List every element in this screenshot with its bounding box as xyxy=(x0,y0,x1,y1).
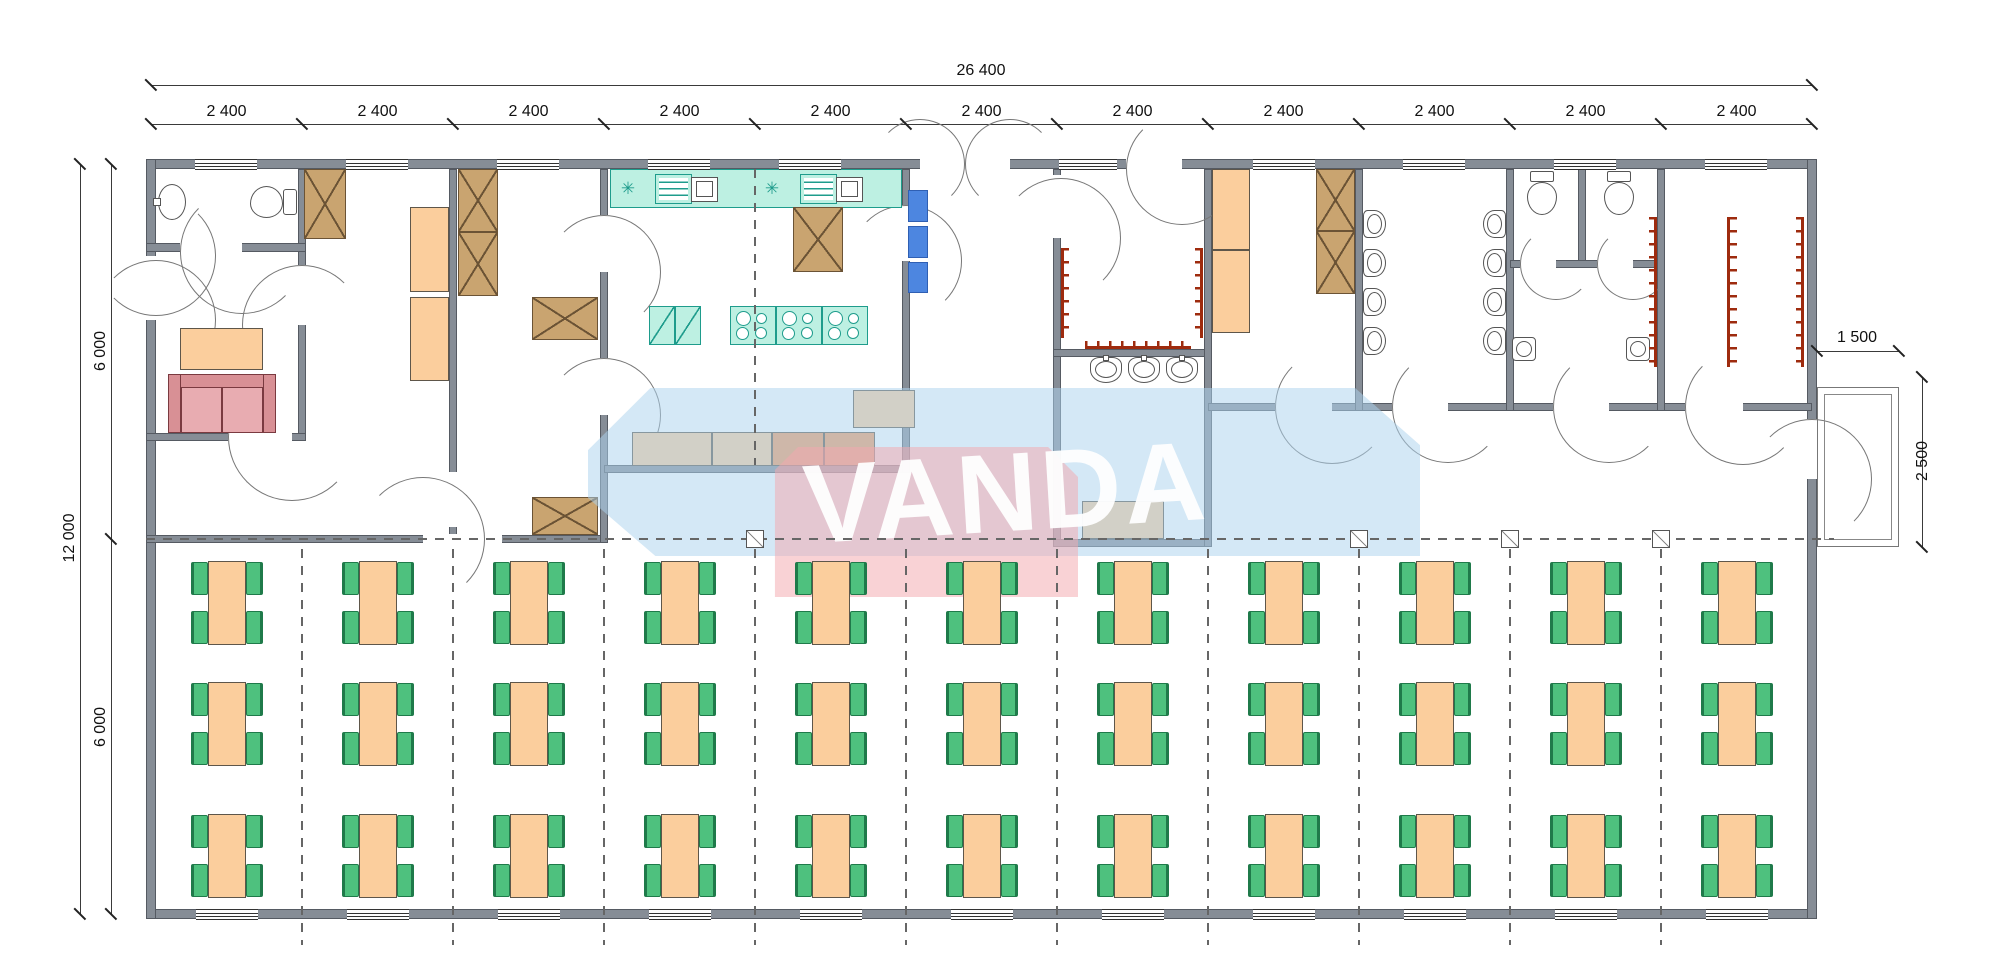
axis-line-horizontal xyxy=(146,538,1834,539)
dining-table xyxy=(359,814,397,898)
chair xyxy=(1550,562,1567,595)
chair xyxy=(1605,732,1622,765)
refrigerator xyxy=(649,306,675,345)
toilet-tank xyxy=(1530,171,1554,182)
wash-basin-bowl xyxy=(1487,214,1502,234)
chair xyxy=(1550,683,1567,716)
window xyxy=(779,159,841,170)
chair xyxy=(850,562,867,595)
coat-rack-freestanding xyxy=(1727,217,1737,367)
chair xyxy=(1454,611,1471,644)
chair xyxy=(493,562,510,595)
chair xyxy=(850,611,867,644)
chair xyxy=(795,562,812,595)
chair xyxy=(1152,683,1169,716)
wardrobe xyxy=(304,169,346,239)
chair xyxy=(397,815,414,848)
chair xyxy=(1399,864,1416,897)
chair xyxy=(1152,562,1169,595)
chair xyxy=(1756,732,1773,765)
chair xyxy=(1152,732,1169,765)
height-segment-dimension-bottom: 6 000 xyxy=(92,677,110,777)
chair xyxy=(1605,562,1622,595)
chair xyxy=(1001,732,1018,765)
chair xyxy=(795,864,812,897)
chair xyxy=(1303,864,1320,897)
cabinet xyxy=(532,497,598,535)
axis-marker xyxy=(746,530,764,548)
dining-table xyxy=(1567,814,1605,898)
chair xyxy=(1303,611,1320,644)
dining-table xyxy=(661,814,699,898)
wash-basin-bowl xyxy=(1487,292,1502,312)
door-arc xyxy=(850,205,962,317)
axis-line-vertical xyxy=(1358,549,1359,945)
dining-table xyxy=(1416,561,1454,645)
chair xyxy=(191,611,208,644)
dining-table xyxy=(1416,814,1454,898)
chair xyxy=(246,562,263,595)
chair xyxy=(795,683,812,716)
chair xyxy=(644,732,661,765)
chair xyxy=(850,815,867,848)
dining-table xyxy=(1114,561,1152,645)
dining-table xyxy=(359,561,397,645)
chair xyxy=(1001,683,1018,716)
wash-basin-bowl xyxy=(1487,253,1502,273)
window xyxy=(1253,159,1315,170)
chair xyxy=(397,562,414,595)
dimension-line-total-height xyxy=(80,164,81,914)
dining-table xyxy=(1265,561,1303,645)
stove xyxy=(730,306,776,345)
chair xyxy=(946,732,963,765)
chair xyxy=(1550,732,1567,765)
chair xyxy=(795,815,812,848)
dining-table xyxy=(963,814,1001,898)
axis-line-vertical xyxy=(1509,549,1510,945)
chair xyxy=(1550,864,1567,897)
axis-marker xyxy=(1652,530,1670,548)
chair xyxy=(1248,562,1265,595)
bay-width-label: 2 400 xyxy=(197,103,257,121)
window xyxy=(951,909,1013,920)
chair xyxy=(1605,611,1622,644)
wash-basin-bowl xyxy=(1367,292,1382,312)
dining-table xyxy=(812,561,850,645)
wash-basin-bowl xyxy=(1367,214,1382,234)
chair xyxy=(1001,864,1018,897)
chair xyxy=(644,611,661,644)
axis-line-vertical xyxy=(754,169,755,465)
window xyxy=(1555,909,1617,920)
dining-table xyxy=(1114,682,1152,766)
dining-table xyxy=(208,814,246,898)
shelf-unit xyxy=(908,226,928,258)
chair xyxy=(1097,815,1114,848)
chair xyxy=(1399,611,1416,644)
chair xyxy=(699,864,716,897)
overall-width-dimension: 26 400 xyxy=(931,62,1031,80)
stall-door-arc xyxy=(1597,228,1669,300)
dining-table xyxy=(1567,682,1605,766)
chair xyxy=(493,611,510,644)
chair xyxy=(850,864,867,897)
sink-drainboard xyxy=(655,174,692,204)
toilet-bowl xyxy=(1604,182,1634,215)
sink-drainboard xyxy=(800,174,837,204)
window xyxy=(649,909,711,920)
axis-line-vertical xyxy=(452,549,453,945)
tall-cabinet xyxy=(1212,250,1250,333)
dining-table xyxy=(1114,814,1152,898)
chair xyxy=(1701,732,1718,765)
window xyxy=(648,159,710,170)
chair xyxy=(1701,864,1718,897)
wardrobe-tall xyxy=(458,232,498,296)
coat-hook-strip xyxy=(1085,341,1191,349)
chair xyxy=(246,611,263,644)
dining-table xyxy=(510,682,548,766)
wash-basin-bowl xyxy=(1487,331,1502,351)
dining-table xyxy=(812,814,850,898)
chair xyxy=(342,611,359,644)
chair xyxy=(644,864,661,897)
chair xyxy=(548,732,565,765)
chair xyxy=(1701,683,1718,716)
chair xyxy=(1303,683,1320,716)
dining-table xyxy=(661,682,699,766)
bay-width-label: 2 400 xyxy=(1707,103,1767,121)
chair xyxy=(946,562,963,595)
toilet-tank xyxy=(1607,171,1631,182)
kitchen-sink-basin xyxy=(841,181,858,197)
stove-burner-icon xyxy=(802,313,813,324)
chair xyxy=(548,683,565,716)
chair xyxy=(1097,864,1114,897)
chair xyxy=(946,683,963,716)
window xyxy=(347,909,409,920)
kitchen-cabinet xyxy=(793,207,843,272)
chair xyxy=(342,562,359,595)
window xyxy=(1102,909,1164,920)
cooker-symbol-icon: ✳ xyxy=(763,180,781,197)
chair xyxy=(644,815,661,848)
chair xyxy=(1303,732,1320,765)
chair xyxy=(1756,683,1773,716)
chair xyxy=(246,683,263,716)
chair xyxy=(795,611,812,644)
porch-width-dimension: 1 500 xyxy=(1812,329,1902,347)
stove-burner-icon xyxy=(847,327,859,339)
chair xyxy=(1454,683,1471,716)
chair xyxy=(397,683,414,716)
door-arc xyxy=(1553,351,1665,463)
dining-table xyxy=(1265,814,1303,898)
chair xyxy=(644,683,661,716)
chair xyxy=(1756,611,1773,644)
chair xyxy=(548,562,565,595)
dining-table xyxy=(1416,682,1454,766)
chair xyxy=(246,864,263,897)
bay-width-label: 2 400 xyxy=(499,103,559,121)
chair xyxy=(1248,864,1265,897)
chair xyxy=(1152,864,1169,897)
cooker-symbol-icon: ✳ xyxy=(619,180,637,197)
chair xyxy=(1248,683,1265,716)
tall-cabinet xyxy=(1212,169,1250,250)
chair xyxy=(548,864,565,897)
chair xyxy=(548,815,565,848)
chair xyxy=(342,683,359,716)
chair xyxy=(699,732,716,765)
chair xyxy=(493,683,510,716)
chair xyxy=(1399,815,1416,848)
window xyxy=(498,909,560,920)
bay-width-label: 2 400 xyxy=(952,103,1012,121)
chair xyxy=(1454,732,1471,765)
basin-tap-icon xyxy=(1179,355,1185,361)
wash-basin-bowl xyxy=(1095,361,1117,378)
dining-table xyxy=(510,561,548,645)
window xyxy=(1253,909,1315,920)
chair xyxy=(1756,815,1773,848)
chair xyxy=(1701,611,1718,644)
corner-basin-bowl xyxy=(1630,341,1646,357)
overall-height-dimension: 12 000 xyxy=(61,478,79,598)
chair xyxy=(1152,815,1169,848)
chair xyxy=(850,683,867,716)
dining-table xyxy=(208,561,246,645)
chair xyxy=(397,732,414,765)
stove xyxy=(822,306,868,345)
porch-width-line xyxy=(1817,351,1899,352)
kitchen-sink-basin xyxy=(696,181,713,197)
wardrobe xyxy=(1316,169,1355,231)
chair xyxy=(1248,611,1265,644)
window xyxy=(1403,159,1465,170)
wall-washroom-east xyxy=(1506,169,1514,411)
window xyxy=(1554,159,1616,170)
chair xyxy=(1152,611,1169,644)
chair xyxy=(1303,815,1320,848)
chair xyxy=(946,864,963,897)
bay-width-label: 2 400 xyxy=(1405,103,1465,121)
axis-line-vertical xyxy=(1207,549,1208,945)
chair xyxy=(191,683,208,716)
dining-table xyxy=(1567,561,1605,645)
sofa-armrest xyxy=(263,374,276,433)
chair xyxy=(1454,864,1471,897)
wall-mudroom-south xyxy=(1053,349,1212,357)
chair xyxy=(1701,562,1718,595)
chair xyxy=(1001,815,1018,848)
dining-table xyxy=(208,682,246,766)
chair xyxy=(246,732,263,765)
chair xyxy=(946,611,963,644)
dining-table xyxy=(510,814,548,898)
chair xyxy=(342,815,359,848)
dining-table xyxy=(661,561,699,645)
bay-width-label: 2 400 xyxy=(801,103,861,121)
stove-burner-icon xyxy=(848,313,859,324)
stove-burner-icon xyxy=(828,327,841,340)
stove-burner-icon xyxy=(736,327,749,340)
chair xyxy=(1399,683,1416,716)
axis-marker xyxy=(1350,530,1368,548)
dining-table xyxy=(1265,682,1303,766)
axis-line-vertical xyxy=(1056,549,1057,945)
chair xyxy=(1097,732,1114,765)
chair xyxy=(1001,611,1018,644)
dimension-line-total-width xyxy=(151,85,1812,86)
chair xyxy=(1701,815,1718,848)
chair xyxy=(1756,562,1773,595)
stove-burner-icon xyxy=(782,327,795,340)
chair xyxy=(1399,732,1416,765)
chair xyxy=(1248,732,1265,765)
axis-line-vertical xyxy=(754,549,755,945)
sink-tap-icon xyxy=(153,198,161,206)
wall-wc-east xyxy=(1657,169,1665,411)
chair xyxy=(342,864,359,897)
window xyxy=(800,909,862,920)
bay-width-label: 2 400 xyxy=(1103,103,1163,121)
axis-marker xyxy=(1501,530,1519,548)
window xyxy=(346,159,408,170)
shelf-unit xyxy=(908,190,928,222)
desk xyxy=(410,297,449,381)
bay-width-label: 2 400 xyxy=(650,103,710,121)
chair xyxy=(699,815,716,848)
chair xyxy=(191,864,208,897)
dining-table xyxy=(359,682,397,766)
stove-burner-icon xyxy=(801,327,813,339)
dining-table xyxy=(1718,814,1756,898)
sofa-seat-cushion xyxy=(222,387,263,433)
dining-table xyxy=(963,682,1001,766)
chair xyxy=(1454,815,1471,848)
coat-hook-strip xyxy=(1796,217,1804,367)
chair xyxy=(1756,864,1773,897)
chair xyxy=(1097,562,1114,595)
chair xyxy=(644,562,661,595)
lounge-coffee-table xyxy=(180,328,263,370)
chair xyxy=(795,732,812,765)
bay-width-label: 2 400 xyxy=(348,103,408,121)
chair xyxy=(1550,815,1567,848)
stove-burner-icon xyxy=(756,313,767,324)
window xyxy=(1705,159,1767,170)
chair xyxy=(1097,611,1114,644)
stove xyxy=(776,306,822,345)
stall-door-arc xyxy=(1520,228,1592,300)
chair xyxy=(397,611,414,644)
chair xyxy=(1248,815,1265,848)
chair xyxy=(1001,562,1018,595)
coat-hook-strip xyxy=(1649,217,1657,367)
bay-width-label: 2 400 xyxy=(1556,103,1616,121)
window xyxy=(196,909,258,920)
chair xyxy=(1605,683,1622,716)
basin-tap-icon xyxy=(1141,355,1147,361)
window xyxy=(1059,159,1117,170)
chair xyxy=(548,611,565,644)
wash-basin-bowl xyxy=(1133,361,1155,378)
sofa-seat-cushion xyxy=(181,387,222,433)
bathroom-sink xyxy=(158,184,186,220)
window xyxy=(195,159,257,170)
toilet-bowl xyxy=(250,186,283,218)
stove-burner-icon xyxy=(755,327,767,339)
axis-line-vertical xyxy=(1660,549,1661,945)
chair xyxy=(493,732,510,765)
porch-depth-dimension: 2 500 xyxy=(1914,411,1932,511)
chair xyxy=(1097,683,1114,716)
toilet-tank xyxy=(283,189,297,215)
axis-line-vertical xyxy=(905,549,906,945)
cabinet xyxy=(532,297,598,340)
floor-plan-canvas: 26 400 12 000 6 000 6 000 1 500 2 500 xyxy=(0,0,2000,975)
sofa-armrest xyxy=(168,374,181,433)
chair xyxy=(1303,562,1320,595)
bay-width-label: 2 400 xyxy=(1254,103,1314,121)
dining-table xyxy=(1718,682,1756,766)
window xyxy=(497,159,559,170)
chair xyxy=(1605,864,1622,897)
coat-hook-strip xyxy=(1195,248,1203,338)
chair xyxy=(246,815,263,848)
dining-table xyxy=(1718,561,1756,645)
chair xyxy=(1550,611,1567,644)
porch-deck-inner xyxy=(1824,394,1892,540)
stove-burner-icon xyxy=(828,311,843,326)
toilet-bowl xyxy=(1527,182,1557,215)
chair xyxy=(191,562,208,595)
refrigerator xyxy=(675,306,701,345)
chair xyxy=(1454,562,1471,595)
coat-hook-strip xyxy=(1061,248,1069,338)
chair xyxy=(1399,562,1416,595)
stove-burner-icon xyxy=(782,311,797,326)
stove-burner-icon xyxy=(736,311,751,326)
wash-basin-bowl xyxy=(1171,361,1193,378)
wash-basin-bowl xyxy=(1367,331,1382,351)
chair xyxy=(493,815,510,848)
chair xyxy=(191,732,208,765)
axis-line-vertical xyxy=(603,549,604,945)
dimension-line-bays xyxy=(151,124,1812,125)
dining-table xyxy=(963,561,1001,645)
chair xyxy=(699,683,716,716)
wardrobe-tall xyxy=(458,169,498,232)
wardrobe xyxy=(1316,231,1355,294)
window xyxy=(1404,909,1466,920)
desk xyxy=(410,207,449,292)
chair xyxy=(397,864,414,897)
sofa-back xyxy=(168,374,276,388)
axis-line-vertical xyxy=(301,549,302,945)
chair xyxy=(699,611,716,644)
chair xyxy=(342,732,359,765)
corner-basin-bowl xyxy=(1516,341,1532,357)
wash-basin-bowl xyxy=(1367,253,1382,273)
dining-table xyxy=(812,682,850,766)
shelf-unit xyxy=(908,262,928,293)
chair xyxy=(493,864,510,897)
chair xyxy=(1605,815,1622,848)
chair xyxy=(946,815,963,848)
